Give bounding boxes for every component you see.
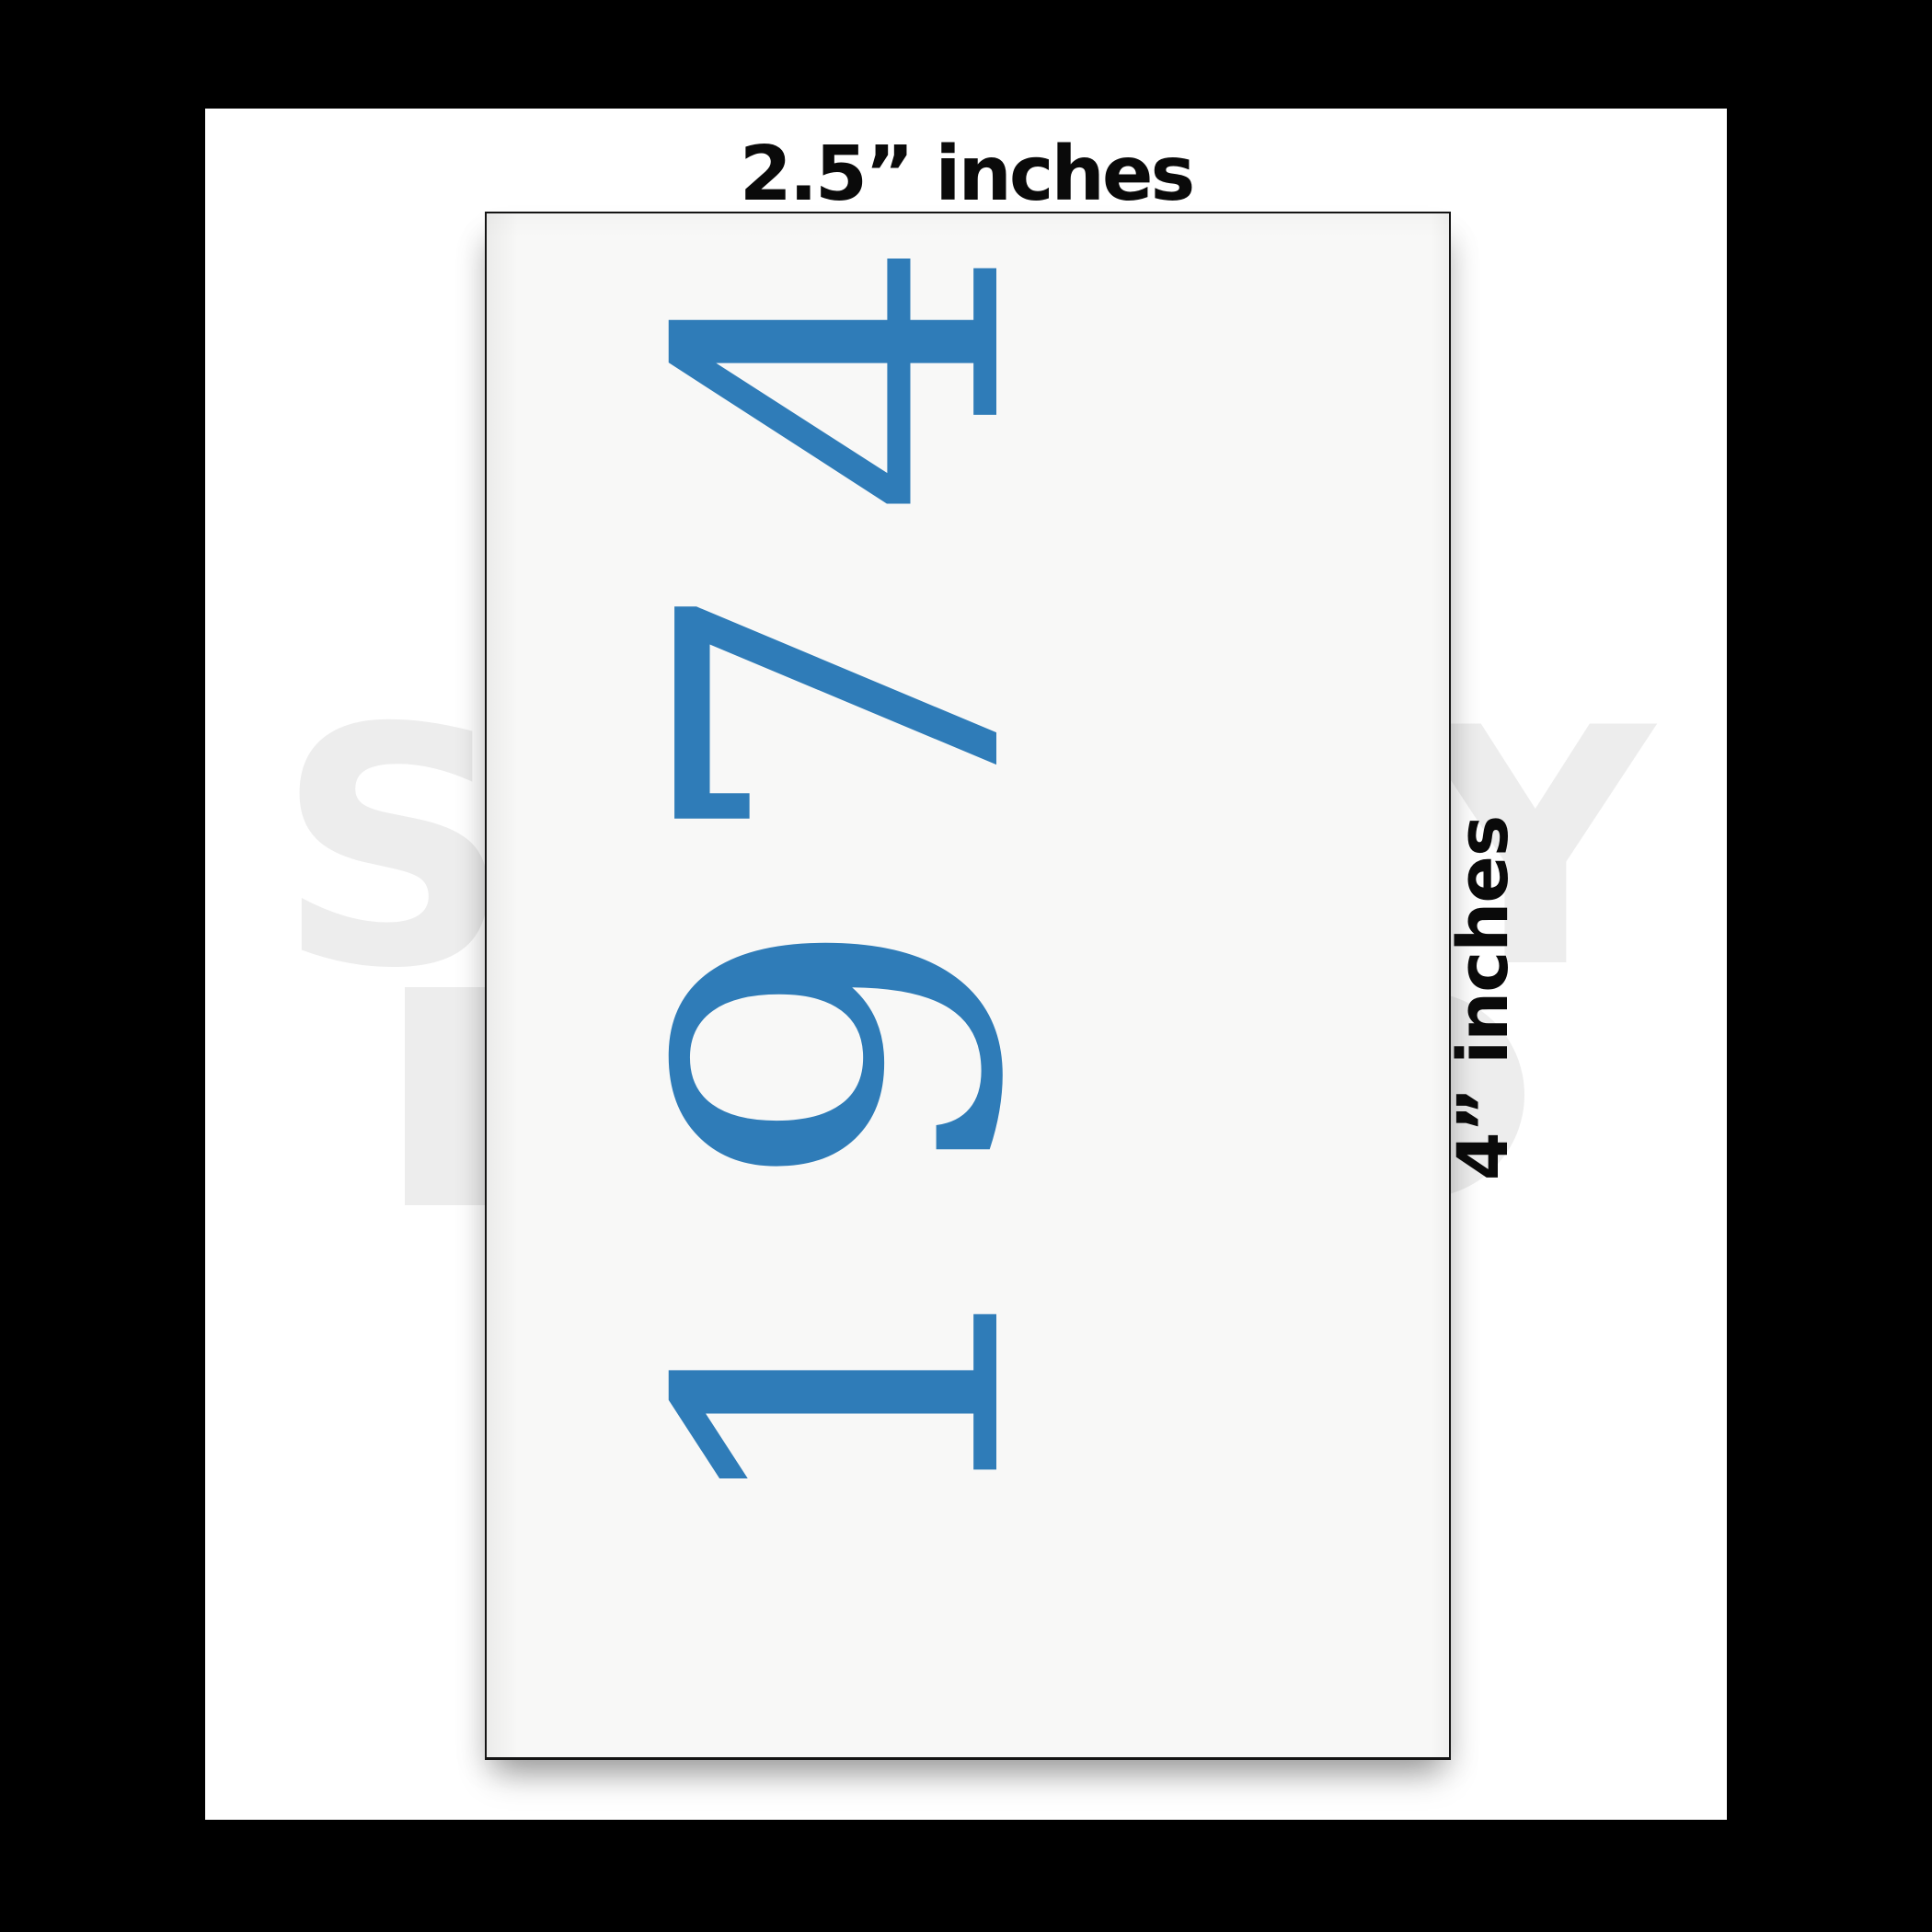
product-mockup-image: S Y 1974 2.5” inches 4” inches [0,0,1932,1932]
watermark-letter-left: S [276,685,512,1013]
width-dimension-label: 2.5” inches [506,136,1426,213]
white-backdrop: S Y 1974 2.5” inches 4” inches [205,109,1727,1820]
height-dimension-label: 4” inches [1446,814,1520,1182]
year-text: 1974 [624,166,1065,1546]
